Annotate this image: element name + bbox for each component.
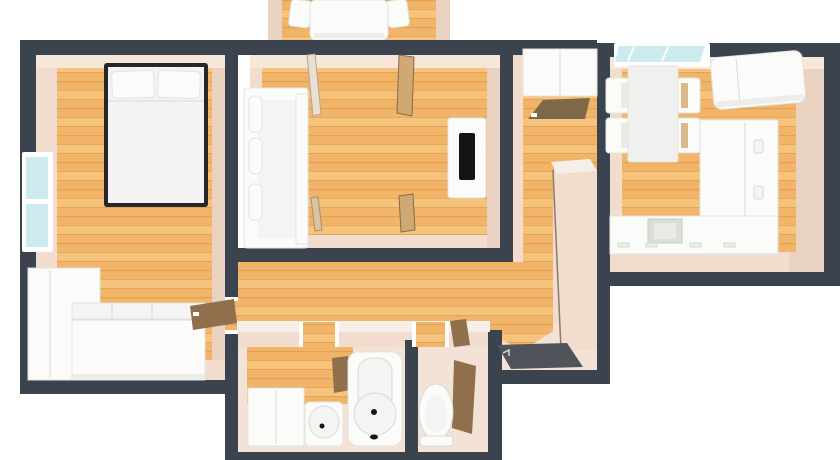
balcony-chair-left: [288, 0, 312, 28]
bathroom-door-opening: [302, 322, 336, 347]
wardrobe-top-surface: [72, 303, 205, 319]
drawer-handle-2: [754, 186, 763, 199]
sofa-cushion-2: [249, 184, 262, 220]
hallway-floor: [237, 262, 553, 322]
chair-1-slat: [621, 83, 628, 108]
kitchen-chair-3: [677, 78, 700, 113]
bedroom-window: [22, 152, 53, 252]
counter-handle-1: [618, 243, 629, 247]
sofa-cushion-1: [249, 138, 262, 174]
drawer-handle-1: [754, 140, 763, 153]
toilet-seat: [425, 395, 447, 433]
chair-3-slat: [681, 83, 688, 108]
bed-pillow-right: [158, 70, 201, 98]
bathtub-faucet: [370, 435, 378, 440]
balcony-table-edge: [314, 33, 384, 38]
chair-2-slat: [621, 123, 628, 148]
wall-wc-divider: [405, 340, 418, 460]
sofa-front: [296, 94, 308, 244]
counter-handle-2: [646, 243, 657, 247]
balcony-door-leaf: [397, 55, 414, 116]
tv-screen: [459, 133, 475, 180]
wall-kitchen-bottom: [597, 272, 840, 286]
bathroom-open-door: [332, 356, 350, 393]
balcony-wall-right: [436, 0, 450, 42]
wall-bathroom-bottom: [225, 452, 502, 460]
balcony-chair-right: [386, 0, 410, 28]
chair-4-slat: [681, 123, 688, 148]
wall-kitchen-right: [824, 43, 840, 286]
kitchen-chair-4: [677, 118, 700, 153]
basin-drain: [320, 424, 325, 429]
wc-door-jamb-left: [412, 322, 416, 347]
bathroom-door-jamb-left: [299, 322, 303, 347]
wc-open-door: [452, 360, 476, 434]
bedroom-door-jamb-bottom: [225, 330, 238, 334]
sofa: [244, 88, 308, 248]
window-mullion: [24, 199, 50, 204]
bathroom-door-jamb-right: [335, 322, 339, 347]
bathtub-drain: [371, 409, 377, 415]
balcony-wall-left: [268, 0, 282, 42]
sofa-seat: [258, 100, 296, 238]
wall-bedroom-bottom: [20, 380, 238, 394]
hall-mat-mark: [531, 113, 537, 117]
kitchen-window: [614, 43, 710, 67]
counter-handle-4: [724, 243, 735, 247]
wall-living-east: [500, 40, 513, 262]
kitchen-sink-basin: [654, 223, 676, 239]
wall-living-bottom: [237, 248, 513, 262]
wall-spine-lower: [225, 331, 238, 460]
wall-spine-upper: [225, 40, 238, 298]
hall-door-leaf: [399, 194, 415, 232]
floor-plan-image: [0, 0, 840, 460]
bedroom-door-handle: [193, 312, 199, 316]
wc-door-jamb-right: [445, 322, 449, 347]
fridge: [710, 50, 806, 110]
kitchen-counter: [610, 216, 778, 254]
wash-basin: [309, 406, 339, 438]
sofa-cushion-3: [249, 96, 262, 132]
wc-door-opening: [415, 322, 448, 347]
counter-handle-3: [690, 243, 701, 247]
bed-pillow-left: [112, 70, 155, 98]
toilet-base: [420, 436, 453, 446]
wall-entrance-bottom: [488, 370, 610, 384]
room-balcony: [268, 0, 450, 42]
entry-strip-floor-lower: [523, 170, 553, 262]
window-glass-bottom: [26, 204, 48, 247]
dining-table: [628, 66, 678, 162]
wardrobe-shadow: [72, 374, 205, 380]
window-glass-top: [26, 157, 48, 199]
